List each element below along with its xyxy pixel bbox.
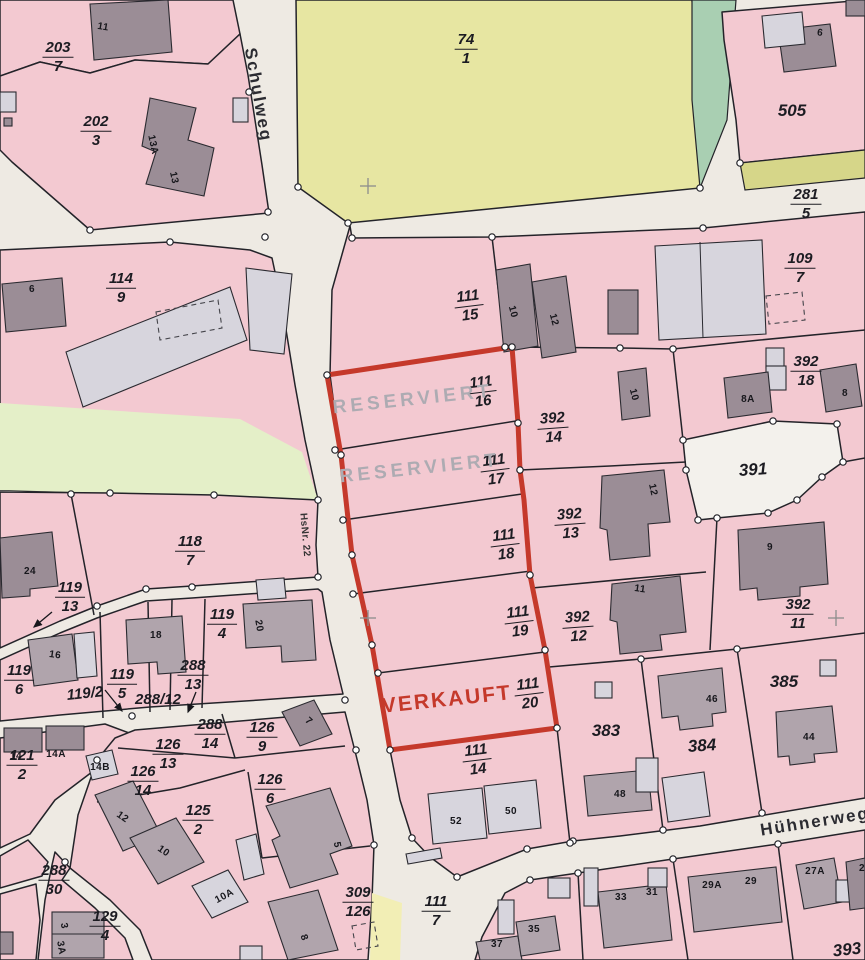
building-109-dark: [608, 290, 638, 334]
house-number: 46: [706, 695, 718, 706]
parcel-label-383: 383: [592, 722, 620, 740]
parcel-label-385: 385: [770, 673, 798, 691]
parcel-label-119-4: 1194: [207, 607, 237, 642]
parcel-label-391: 391: [738, 460, 768, 480]
house-number: 2: [859, 864, 865, 875]
building-14a: [46, 726, 84, 750]
parcel-label-111-18: 11118: [489, 526, 522, 564]
house-number: 24: [24, 567, 36, 578]
parcel-label-288-12: 288/12: [135, 692, 181, 708]
outbuilding: [662, 772, 710, 822]
garage: [74, 632, 97, 678]
house-number: 33: [615, 893, 627, 904]
outbuilding: [820, 660, 836, 676]
parcel-label-288-13: 28813: [177, 658, 208, 693]
house-number: 52: [450, 817, 462, 828]
parcel-label-202-3: 2023: [80, 114, 111, 149]
parcel-label-126-9: 1269: [246, 720, 277, 755]
house-number: 14A: [46, 750, 66, 761]
building-35: [516, 916, 560, 956]
house-number: 27A: [805, 867, 825, 878]
parcel-label-126-14: 12614: [127, 764, 158, 799]
parcel-label-392-13: 39213: [553, 506, 586, 543]
building-annex-114: [246, 268, 292, 354]
building-33-31: [598, 884, 672, 948]
parcel-label-118-7: 1187: [175, 534, 205, 569]
house-number: 29: [745, 877, 757, 888]
parcel-label-203-7: 2037: [42, 40, 73, 75]
outbuilding: [762, 12, 805, 48]
parcel-label-126-6: 1266: [254, 772, 285, 807]
garage: [766, 348, 784, 368]
house-number: 3A: [54, 940, 67, 955]
parcel-label-119-5: 1195: [107, 667, 137, 702]
field-74-1: [296, 0, 701, 223]
house-number: 11: [634, 584, 647, 596]
house-number: 11: [96, 22, 109, 34]
outbuilding: [595, 682, 612, 698]
garage: [648, 868, 667, 887]
house-number: 14: [10, 752, 22, 763]
house-number: 9: [767, 543, 773, 554]
house-number: 48: [614, 790, 626, 801]
outbuilding: [233, 98, 248, 122]
parcel-label-119-6: 1196: [4, 663, 34, 698]
parcel-label-111-19: 11119: [503, 603, 536, 641]
house-number: 14B: [90, 763, 110, 774]
parcel-label-74-1: 741: [455, 32, 478, 67]
house-number: 44: [803, 733, 815, 744]
house-number: 8: [842, 389, 848, 400]
parcel-label-125-2: 1252: [182, 803, 213, 838]
cadastral-map: 2037 2023 741 2815 1097 1149 11115 11116…: [0, 0, 865, 960]
parcel-label-392-11: 39211: [782, 597, 813, 632]
parcel-label-309-126: 309126: [342, 885, 373, 920]
parcel-label-384: 384: [687, 736, 717, 756]
parcel-label-505: 505: [778, 102, 806, 120]
house-number: 35: [528, 925, 540, 936]
parcel-label-114-9: 1149: [106, 271, 136, 306]
building-corner: [846, 0, 865, 16]
garage: [548, 878, 570, 898]
parcel-label-392-14: 39214: [536, 410, 569, 447]
garage: [584, 868, 598, 906]
parcel-label-393: 393: [832, 940, 862, 960]
house-number: 50: [505, 807, 517, 818]
house-number: 31: [646, 888, 658, 899]
garage: [498, 900, 514, 934]
house-number: 12: [646, 483, 659, 497]
parcel-label-109-7: 1097: [784, 251, 815, 286]
parcel-label-111-15: 11115: [453, 287, 486, 325]
garage: [256, 578, 286, 600]
building-29a-29: [688, 867, 782, 932]
parcel-label-392-12: 39212: [561, 609, 594, 646]
house-number: 37: [491, 940, 503, 951]
house-number: 18: [150, 631, 162, 642]
house-number: 20: [252, 619, 264, 633]
house-number: 13: [167, 171, 180, 185]
house-number: 16: [48, 650, 61, 662]
house-number: 6: [29, 285, 35, 296]
parcel-label-288-30: 28830: [38, 863, 69, 898]
parcel-label-281-5: 2815: [790, 187, 821, 222]
parcel-label-392-18: 39218: [790, 354, 821, 389]
parcel-label-111-20: 11120: [513, 675, 546, 713]
outbuilding: [636, 758, 658, 792]
yellow-patch: [370, 893, 402, 960]
house-number: 29A: [702, 881, 722, 892]
outbuilding: [0, 92, 16, 112]
parcel-label-288-14: 28814: [194, 717, 225, 752]
parcel-label-129-4: 1294: [89, 909, 120, 944]
parcel-label-111-14: 11114: [461, 741, 494, 779]
marker-block: [4, 118, 12, 126]
parcel-label-119-13: 11913: [55, 580, 85, 615]
outbuilding: [240, 946, 262, 960]
house-number: 8A: [741, 395, 755, 406]
outbuilding: [0, 932, 13, 954]
parcel-label-111-7: 1117: [422, 894, 451, 929]
building-109-large: [655, 240, 766, 340]
